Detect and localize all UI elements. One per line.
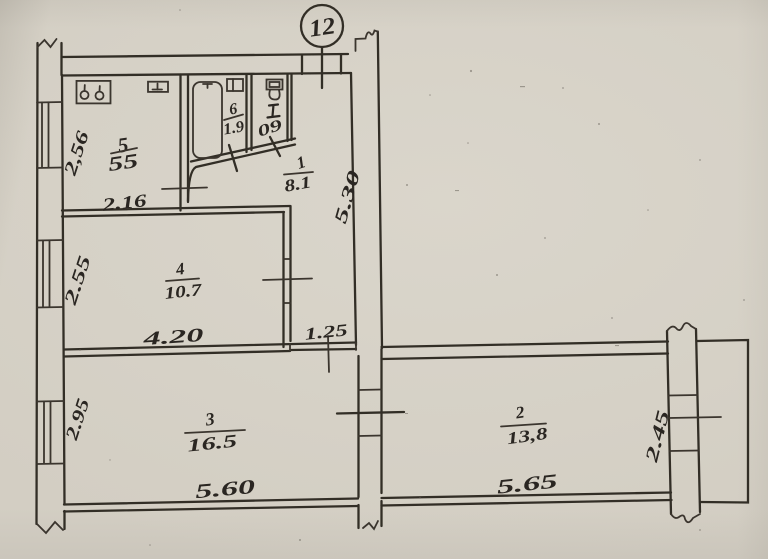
svg-text:2.95: 2.95 [61, 396, 93, 443]
svg-text:1: 1 [294, 152, 308, 173]
svg-text:5.60: 5.60 [194, 476, 256, 503]
svg-text:10.7: 10.7 [164, 280, 205, 303]
svg-text:2,56: 2,56 [59, 129, 92, 179]
svg-text:12: 12 [308, 13, 337, 42]
svg-text:4.20: 4.20 [141, 325, 205, 350]
svg-text:55: 55 [107, 150, 140, 176]
svg-text:2.16: 2.16 [100, 190, 147, 215]
svg-text:13,8: 13,8 [506, 424, 550, 449]
svg-text:1.25: 1.25 [304, 320, 349, 343]
svg-text:2.55: 2.55 [60, 253, 95, 308]
svg-text:16.5: 16.5 [186, 430, 238, 455]
svg-text:09: 09 [255, 117, 284, 141]
svg-text:8.1: 8.1 [283, 172, 313, 195]
svg-text:2: 2 [514, 402, 527, 422]
svg-text:1.9: 1.9 [222, 118, 246, 138]
svg-text:3: 3 [203, 408, 216, 429]
svg-text:5.30: 5.30 [330, 168, 364, 225]
svg-text:4: 4 [174, 259, 186, 279]
